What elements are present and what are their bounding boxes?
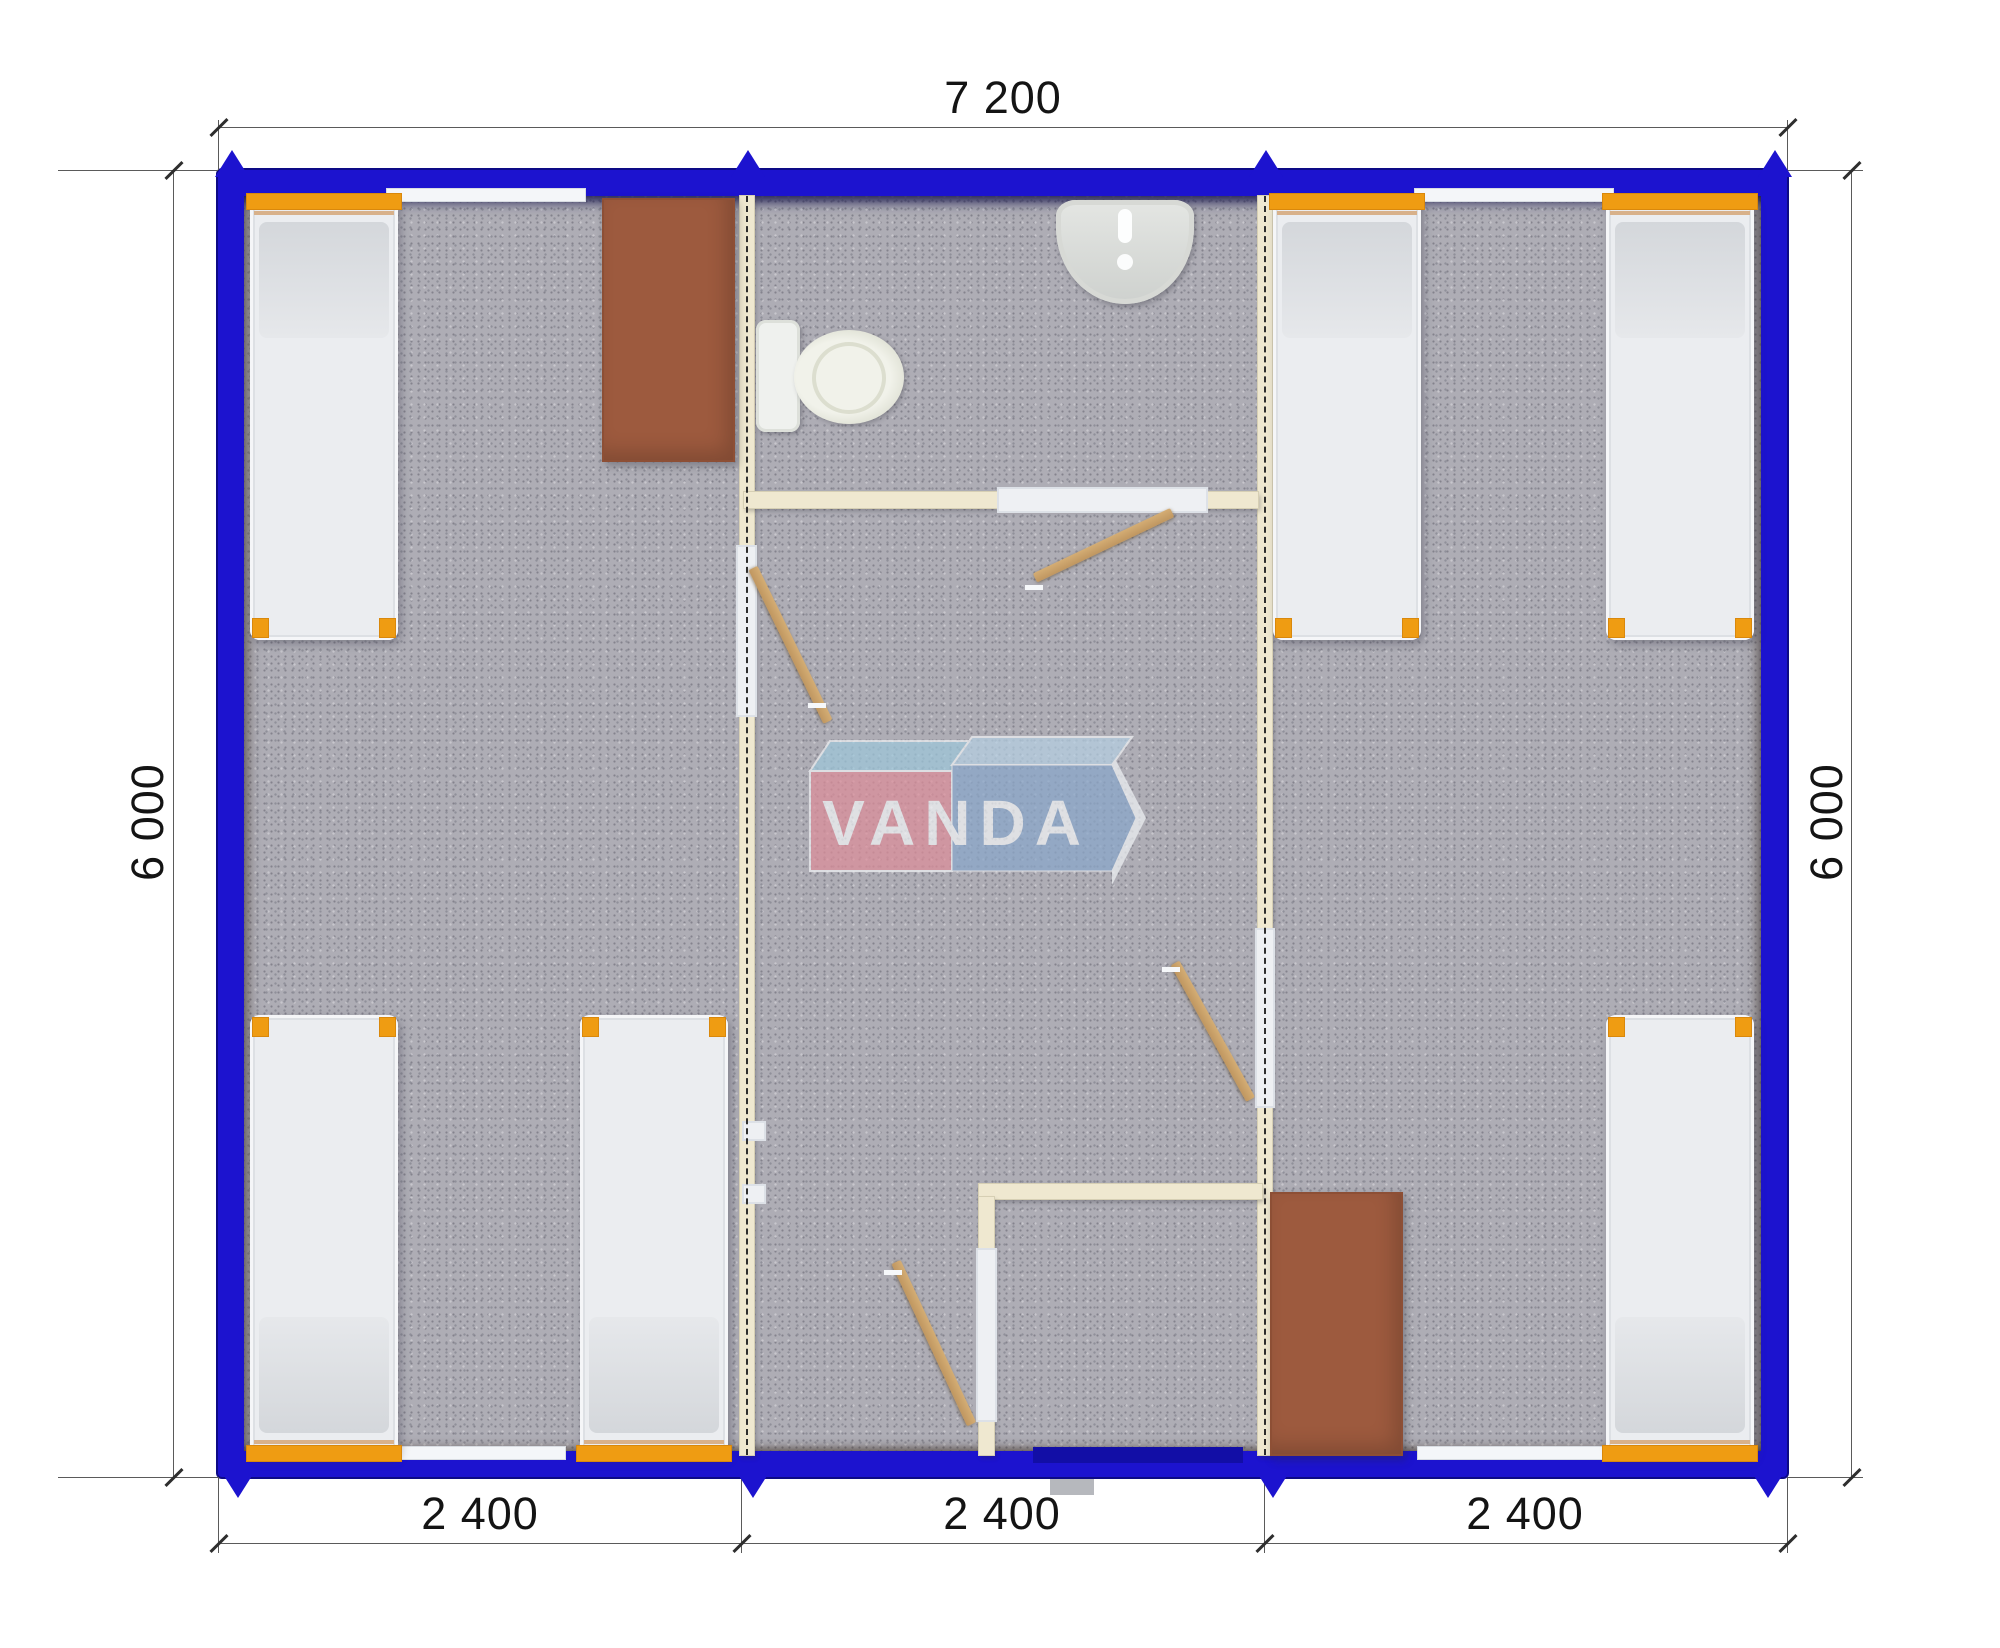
- bed-pillow: [589, 1317, 719, 1433]
- bed-pillow: [1615, 1317, 1745, 1433]
- toilet-seat: [812, 342, 886, 414]
- dim-label-left-height: 6 000: [124, 712, 172, 932]
- bed-post: [1609, 1018, 1624, 1036]
- window: [376, 1446, 566, 1460]
- bed-bar: [247, 1446, 401, 1461]
- entrance-step: [1050, 1479, 1094, 1495]
- bed-post: [1276, 619, 1291, 637]
- door-opening-vestibule: [976, 1248, 997, 1422]
- bed-line: [1610, 211, 1750, 215]
- bed-line: [254, 211, 394, 215]
- bed-bar: [247, 194, 401, 209]
- dim-line-right: [1851, 170, 1852, 1477]
- bed-3: [580, 1015, 728, 1457]
- dim-label-module-2: 2 400: [892, 1490, 1112, 1538]
- bed-2: [250, 1015, 398, 1457]
- module-joint-marker: [736, 1471, 770, 1498]
- logo-right-top-face: [952, 737, 1132, 765]
- bed-1: [250, 198, 398, 640]
- logo-left-top-face: [810, 741, 972, 771]
- logo-text: VANDA: [822, 787, 1090, 859]
- bed-bar: [1603, 194, 1757, 209]
- bed-post: [1736, 619, 1751, 637]
- bed-pillow: [259, 222, 389, 338]
- bed-line: [1277, 211, 1417, 215]
- module-joint-marker: [1256, 1471, 1290, 1498]
- ext-line: [58, 1477, 218, 1478]
- dim-line-bottom: [218, 1543, 1787, 1544]
- bed-post: [253, 1018, 268, 1036]
- dim-label-module-1: 2 400: [370, 1490, 590, 1538]
- module-joint-marker: [731, 150, 765, 177]
- sink-drain: [1117, 254, 1133, 270]
- wardrobe-2: [1270, 1192, 1403, 1456]
- bed-post: [583, 1018, 598, 1036]
- entrance-door: [1033, 1447, 1243, 1463]
- bed-post: [1403, 619, 1418, 637]
- window: [1414, 188, 1614, 202]
- door-handle: [808, 703, 826, 708]
- bed-bar: [577, 1446, 731, 1461]
- window: [386, 188, 586, 202]
- bed-pillow: [1615, 222, 1745, 338]
- bed-post: [253, 619, 268, 637]
- bed-post: [1609, 619, 1624, 637]
- bed-bar: [1603, 1446, 1757, 1461]
- dim-line-top: [218, 127, 1787, 128]
- vestibule-wall-top: [979, 1184, 1262, 1199]
- module-joint-marker: [215, 150, 249, 177]
- bed-4: [1273, 198, 1421, 640]
- bed-line: [254, 1440, 394, 1444]
- module-joint-marker: [1758, 150, 1792, 177]
- bed-post: [380, 619, 395, 637]
- bed-line: [1610, 1440, 1750, 1444]
- floor-plan-canvas: 7 200 2 400 2 400 2 400 6 000 6 000 VAND…: [0, 0, 2000, 1648]
- bed-post: [710, 1018, 725, 1036]
- bed-6: [1606, 1015, 1754, 1457]
- window: [1417, 1446, 1613, 1460]
- dim-line-left: [173, 170, 174, 1477]
- vanda-logo-watermark: VANDA: [806, 733, 1196, 911]
- dim-label-top-width: 7 200: [893, 74, 1113, 122]
- bed-bar: [1270, 194, 1424, 209]
- module-axis: [746, 196, 748, 1455]
- dim-label-right-height: 6 000: [1803, 712, 1851, 932]
- dim-label-module-3: 2 400: [1415, 1490, 1635, 1538]
- module-joint-marker: [221, 1471, 255, 1498]
- bed-line: [584, 1440, 724, 1444]
- module-joint-marker: [1751, 1471, 1785, 1498]
- door-opening-bathroom: [997, 487, 1208, 513]
- door-handle: [1162, 967, 1180, 972]
- module-joint-marker: [1249, 150, 1283, 177]
- bed-post: [1736, 1018, 1751, 1036]
- wardrobe-1: [602, 198, 735, 462]
- door-handle: [884, 1270, 902, 1275]
- bed-5: [1606, 198, 1754, 640]
- bed-pillow: [259, 1317, 389, 1433]
- toilet-bowl: [794, 330, 904, 424]
- door-handle: [1025, 585, 1043, 590]
- bed-post: [380, 1018, 395, 1036]
- bed-pillow: [1282, 222, 1412, 338]
- ext-line: [58, 170, 218, 171]
- module-axis: [1264, 196, 1266, 1455]
- sink-faucet: [1118, 209, 1132, 243]
